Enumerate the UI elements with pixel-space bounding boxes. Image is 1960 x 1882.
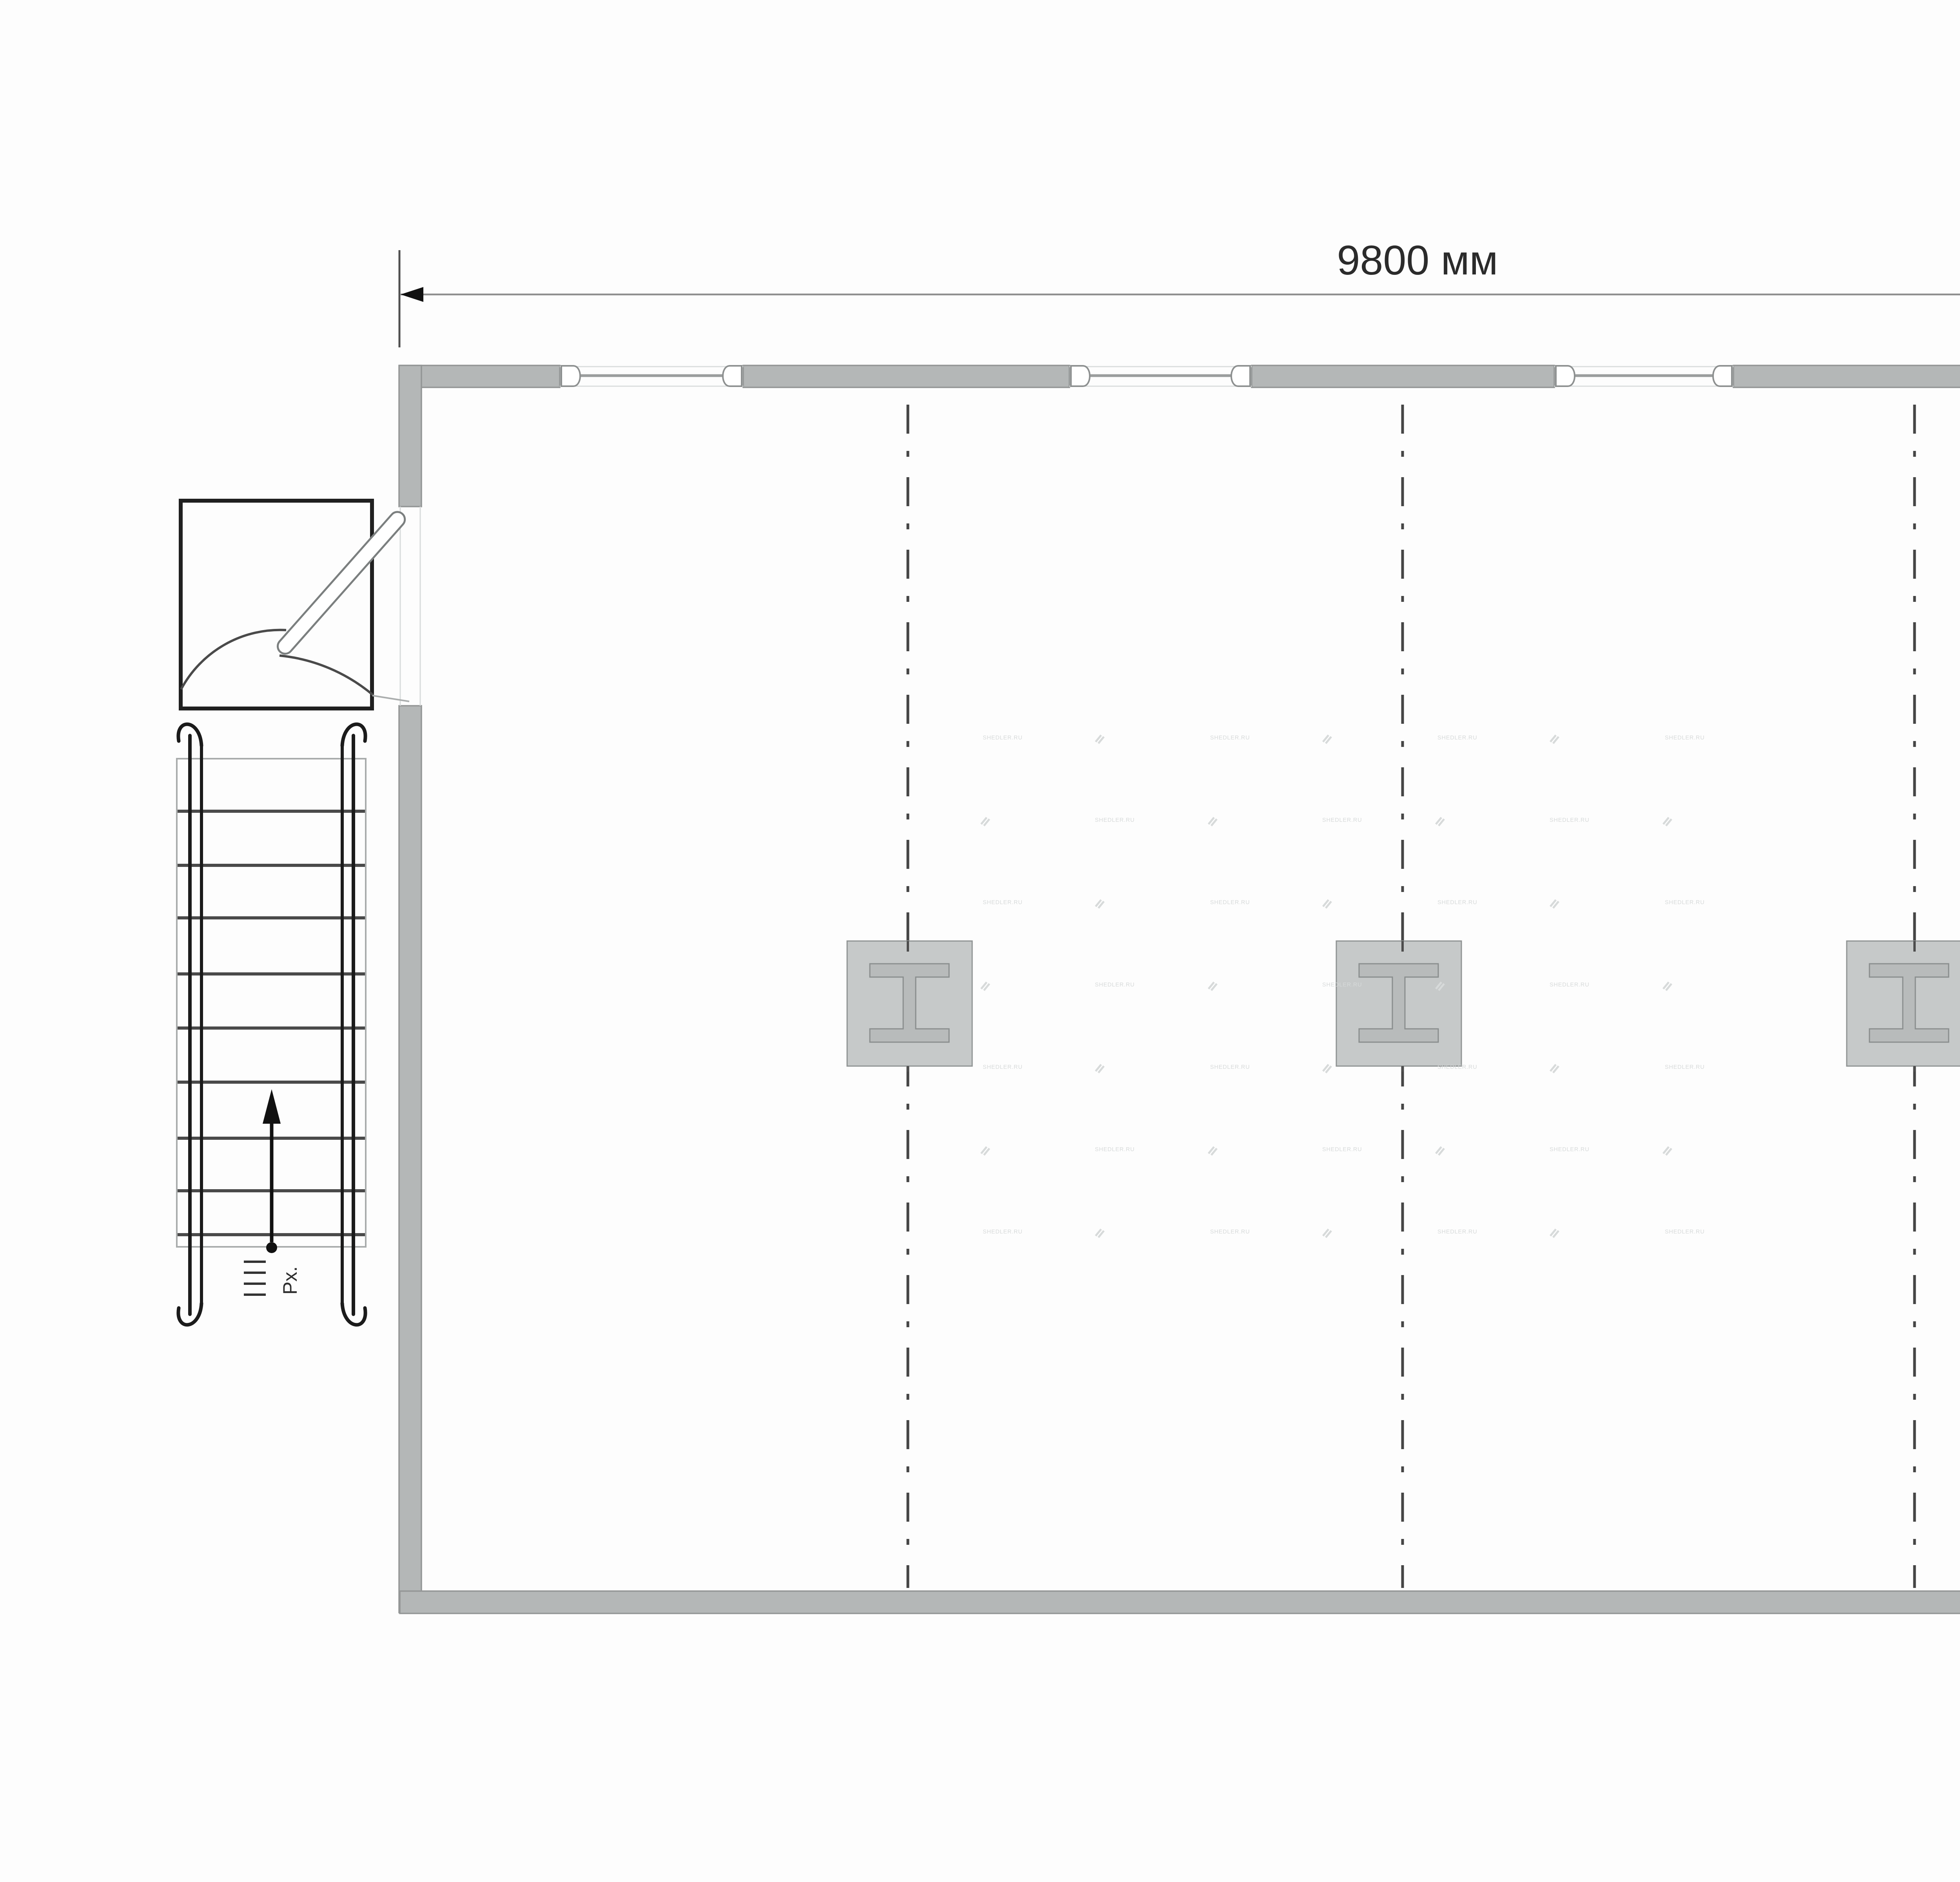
svg-text:SHEDLER.RU: SHEDLER.RU xyxy=(1550,982,1589,988)
svg-text:SHEDLER.RU: SHEDLER.RU xyxy=(983,1229,1022,1235)
svg-text:SHEDLER.RU: SHEDLER.RU xyxy=(1437,899,1477,906)
svg-text:SHEDLER.RU: SHEDLER.RU xyxy=(1322,817,1362,823)
svg-text:SHEDLER.RU: SHEDLER.RU xyxy=(1437,735,1477,741)
svg-text:SHEDLER.RU: SHEDLER.RU xyxy=(1322,1146,1362,1153)
svg-text:9800 мм: 9800 мм xyxy=(1337,237,1498,283)
svg-text:SHEDLER.RU: SHEDLER.RU xyxy=(1210,1064,1250,1070)
svg-text:SHEDLER.RU: SHEDLER.RU xyxy=(1665,1064,1704,1070)
svg-text:SHEDLER.RU: SHEDLER.RU xyxy=(1095,982,1134,988)
svg-text:SHEDLER.RU: SHEDLER.RU xyxy=(1210,735,1250,741)
svg-text:SHEDLER.RU: SHEDLER.RU xyxy=(983,735,1022,741)
svg-text:SHEDLER.RU: SHEDLER.RU xyxy=(1210,1229,1250,1235)
svg-text:SHEDLER.RU: SHEDLER.RU xyxy=(1665,735,1704,741)
svg-text:Рх.: Рх. xyxy=(279,1266,301,1295)
svg-text:SHEDLER.RU: SHEDLER.RU xyxy=(983,1064,1022,1070)
svg-text:SHEDLER.RU: SHEDLER.RU xyxy=(1665,1229,1704,1235)
svg-text:SHEDLER.RU: SHEDLER.RU xyxy=(1095,817,1134,823)
svg-text:SHEDLER.RU: SHEDLER.RU xyxy=(1665,899,1704,906)
svg-text:SHEDLER.RU: SHEDLER.RU xyxy=(1322,982,1362,988)
svg-text:SHEDLER.RU: SHEDLER.RU xyxy=(1550,817,1589,823)
svg-text:SHEDLER.RU: SHEDLER.RU xyxy=(1437,1064,1477,1070)
svg-text:SHEDLER.RU: SHEDLER.RU xyxy=(983,899,1022,906)
svg-text:SHEDLER.RU: SHEDLER.RU xyxy=(1210,899,1250,906)
svg-text:SHEDLER.RU: SHEDLER.RU xyxy=(1095,1146,1134,1153)
svg-text:SHEDLER.RU: SHEDLER.RU xyxy=(1550,1146,1589,1153)
svg-text:SHEDLER.RU: SHEDLER.RU xyxy=(1437,1229,1477,1235)
